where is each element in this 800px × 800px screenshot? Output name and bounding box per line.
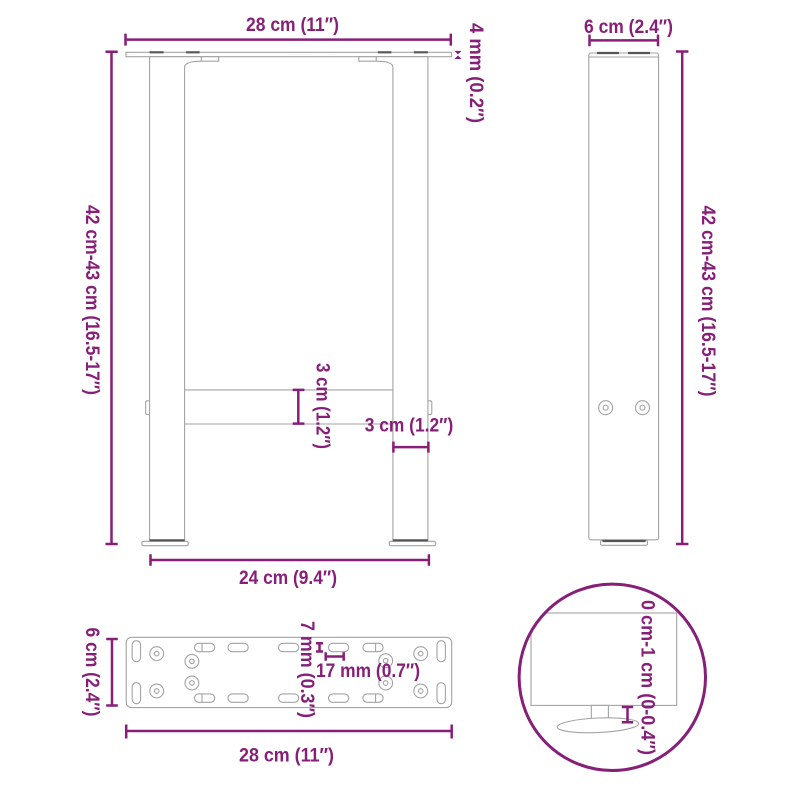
svg-text:6 cm (2.4″): 6 cm (2.4″) <box>584 16 673 38</box>
svg-text:42 cm-43 cm (16.5-17″): 42 cm-43 cm (16.5-17″) <box>81 205 103 395</box>
svg-text:28 cm (11″): 28 cm (11″) <box>246 14 339 36</box>
svg-text:3 cm (1.2″): 3 cm (1.2″) <box>312 363 334 449</box>
svg-text:28 cm (11″): 28 cm (11″) <box>239 745 334 767</box>
svg-text:17 mm (0.7″): 17 mm (0.7″) <box>316 660 420 682</box>
svg-text:0 cm-1 cm (0-0.4″): 0 cm-1 cm (0-0.4″) <box>637 600 659 755</box>
svg-text:42 cm-43 cm (16.5-17″): 42 cm-43 cm (16.5-17″) <box>697 206 719 397</box>
svg-text:24 cm (9.4″): 24 cm (9.4″) <box>239 567 337 589</box>
svg-text:4 mm (0.2″): 4 mm (0.2″) <box>465 23 487 123</box>
svg-text:3 cm (1.2″): 3 cm (1.2″) <box>365 415 454 437</box>
svg-text:6 cm (2.4″): 6 cm (2.4″) <box>81 628 103 717</box>
svg-text:7 mm (0.3″): 7 mm (0.3″) <box>296 621 318 718</box>
